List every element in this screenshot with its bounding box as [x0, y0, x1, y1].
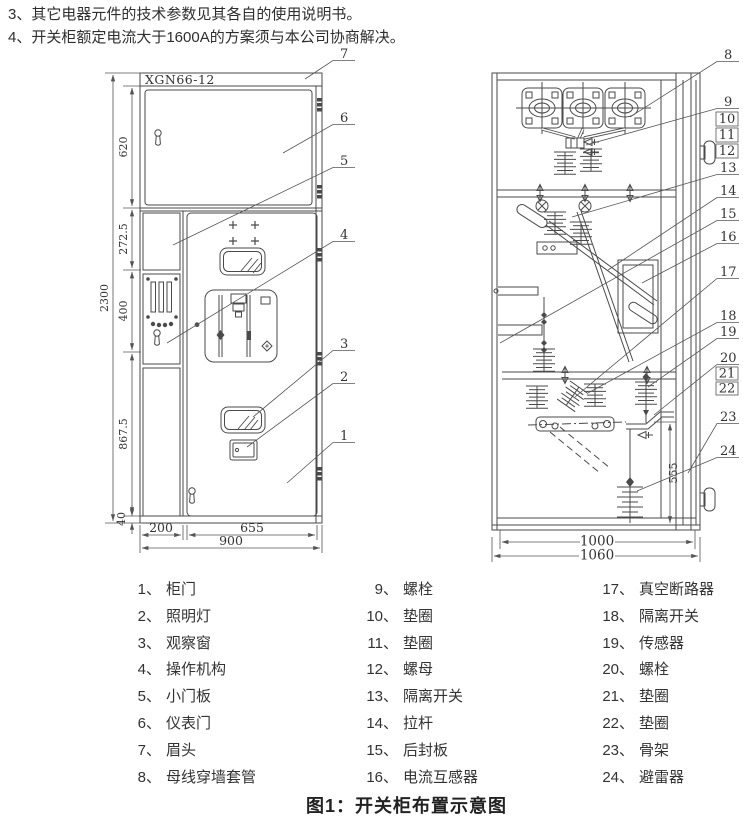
callout-number-2: 2	[340, 370, 348, 385]
callout-number-1: 1	[340, 429, 348, 444]
legend-column-2: 9、螺栓 10、垫圈 11、垫圈 12、螺母 13、隔离开关 14、拉杆 15、…	[352, 577, 478, 791]
callout-number-10: 10	[719, 112, 736, 127]
note-line-3: 3、其它电器元件的技术参数见其各自的使用说明书。	[8, 3, 405, 26]
legend-item: 15、后封板	[352, 738, 478, 765]
side-view-drawing: 555 1000 1060 8 9 10 11 12 13 14	[480, 45, 743, 565]
callout-number-22: 22	[719, 382, 736, 397]
surge-arrester	[617, 477, 643, 523]
cabinet-side-outline	[492, 73, 715, 530]
legend-item: 20、螺栓	[588, 657, 714, 684]
legend-item: 10、垫圈	[352, 604, 478, 631]
vacuum-circuit-breaker	[526, 381, 626, 473]
legend-item: 11、垫圈	[352, 631, 478, 658]
callout-number-8: 8	[724, 48, 732, 63]
legend-item: 12、螺母	[352, 657, 478, 684]
document-page: 3、其它电器元件的技术参数见其各自的使用说明书。 4、开关柜额定电流大于1600…	[0, 0, 743, 823]
dim-655: 655	[240, 520, 264, 535]
cabinet-front-outline	[140, 73, 322, 523]
dim-1060: 1060	[580, 548, 614, 564]
notes-block: 3、其它电器元件的技术参数见其各自的使用说明书。 4、开关柜额定电流大于1600…	[8, 3, 405, 49]
legend-item: 17、真空断路器	[588, 577, 714, 604]
insulator-stack-icon	[533, 349, 555, 371]
legend-item: 3、观察窗	[115, 631, 256, 658]
callout-number-13: 13	[720, 161, 737, 176]
dim-400: 400	[117, 301, 130, 322]
callout-number-12: 12	[719, 144, 736, 159]
dim-867-5: 867.5	[117, 418, 130, 450]
callout-number-7: 7	[340, 47, 348, 62]
dim-total-height: 2300	[98, 284, 111, 312]
callout-number-3: 3	[340, 337, 348, 352]
callout-number-18: 18	[720, 309, 737, 324]
wall-bushing-icon	[516, 82, 651, 134]
legend-item: 18、隔离开关	[588, 604, 714, 631]
front-view-drawing: XGN66-12 2300 620 272.5 400 867.5 40	[95, 45, 365, 560]
insulator-stack-icon	[580, 149, 602, 171]
insulator-stack-icon	[554, 152, 576, 174]
legend-column-3: 17、真空断路器 18、隔离开关 19、传感器 20、螺栓 21、垫圈 22、垫…	[588, 577, 714, 791]
door-handle-icon	[700, 141, 715, 511]
callout-number-20: 20	[720, 351, 737, 366]
callout-number-15: 15	[720, 207, 737, 222]
dim-620: 620	[117, 137, 130, 158]
callout-number-19: 19	[720, 325, 737, 340]
legend-item: 22、垫圈	[588, 711, 714, 738]
callout-number-6: 6	[340, 111, 348, 126]
bolt-icon	[638, 432, 653, 439]
dim-900: 900	[219, 533, 243, 548]
hinge-icon	[317, 98, 322, 481]
callout-number-21: 21	[719, 367, 736, 382]
legend-item: 9、螺栓	[352, 577, 478, 604]
legend-item: 21、垫圈	[588, 684, 714, 711]
pull-rod	[515, 203, 659, 362]
legend-column-1: 1、柜门 2、照明灯 3、观察窗 4、操作机构 5、小门板 6、仪表门 7、眉头…	[115, 577, 256, 791]
keyhole-icon	[155, 130, 161, 146]
legend-item: 16、电流互感器	[352, 765, 478, 792]
dim-200: 200	[149, 520, 173, 535]
legend-item: 13、隔离开关	[352, 684, 478, 711]
sensor	[635, 373, 657, 423]
legend-item: 6、仪表门	[115, 711, 256, 738]
legend-item: 24、避雷器	[588, 765, 714, 792]
dim-272-5: 272.5	[117, 223, 130, 255]
callout-number-5: 5	[340, 154, 348, 169]
operating-mechanism-panel	[205, 290, 277, 362]
callout-number-23: 23	[720, 410, 737, 425]
legend-item: 8、母线穿墙套管	[115, 765, 256, 792]
keyhole-icon	[189, 488, 195, 504]
legend-item: 19、传感器	[588, 631, 714, 658]
callout-number-4: 4	[340, 228, 348, 243]
legend-item: 7、眉头	[115, 738, 256, 765]
legend-item: 14、拉杆	[352, 711, 478, 738]
callout-number-24: 24	[720, 444, 737, 459]
legend-item: 1、柜门	[115, 577, 256, 604]
dim-555: 555	[667, 463, 680, 484]
legend-item: 2、照明灯	[115, 604, 256, 631]
callout-number-17: 17	[720, 265, 737, 280]
keyhole-icon	[154, 330, 160, 346]
callout-number-14: 14	[720, 184, 737, 199]
legend-item: 23、骨架	[588, 738, 714, 765]
figure-caption: 图1：开关柜布置示意图	[306, 792, 507, 818]
callout-number-9: 9	[724, 95, 732, 110]
vent-panel	[143, 274, 180, 364]
legend-item: 4、操作机构	[115, 657, 256, 684]
instrument-door	[145, 90, 312, 205]
callout-number-16: 16	[720, 230, 737, 245]
callout-number-11: 11	[719, 128, 736, 143]
model-label: XGN66-12	[145, 72, 215, 87]
legend-item: 5、小门板	[115, 684, 256, 711]
observation-window	[221, 407, 265, 433]
current-transformer	[618, 260, 658, 333]
small-door-panel	[143, 213, 180, 270]
dim-40: 40	[115, 512, 128, 526]
